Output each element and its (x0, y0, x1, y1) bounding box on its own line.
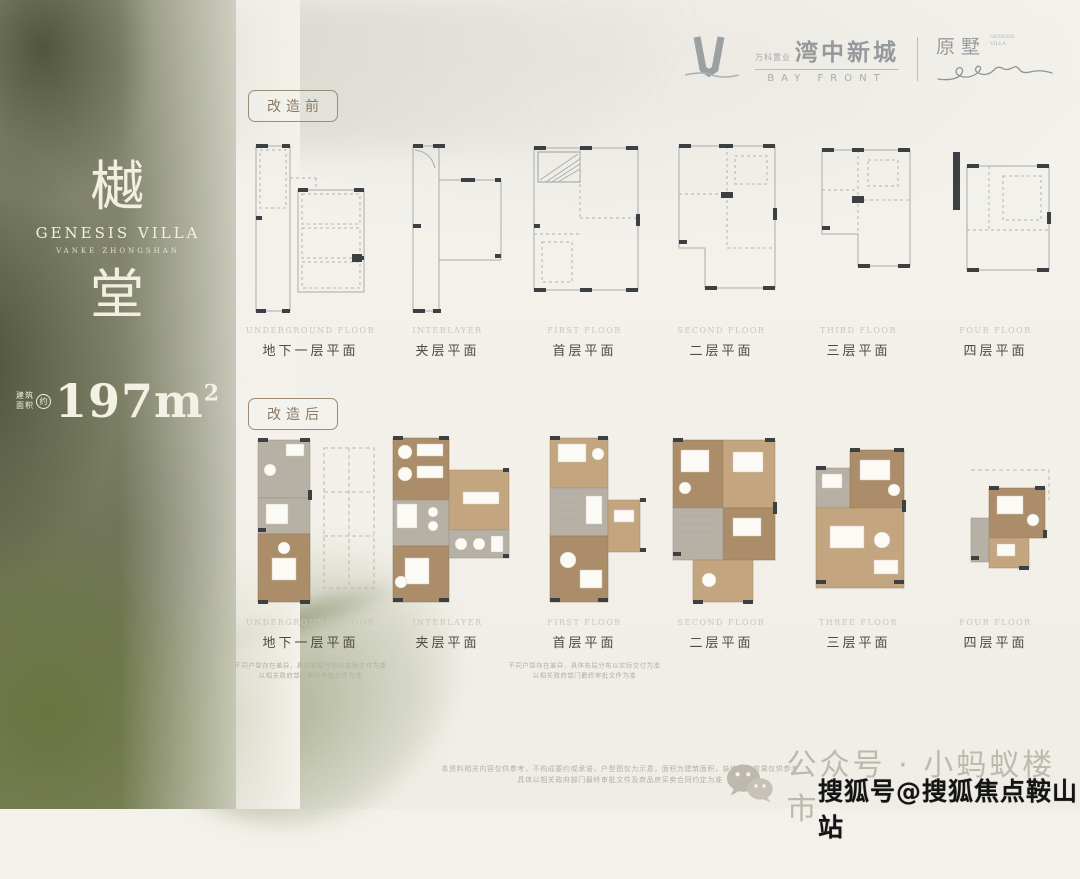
area-sup: 2 (204, 381, 220, 407)
area-approx-circle: 约 (36, 394, 51, 409)
plan-label-cn: 二层平面 (689, 632, 753, 651)
sub-brand-cn: 原墅 (936, 32, 986, 59)
plan-label-en: INTERLAYER (412, 618, 482, 627)
plan-after-interlayer: INTERLAYER 夹层平面 (379, 428, 516, 682)
project-name-cn: 湾中新城 (795, 33, 899, 67)
plan-label-cn: 夹层平面 (415, 340, 479, 359)
plan-after-first: FIRST FLOOR 首层平面 不同户型存在差异，具体布局分布以实际交付为准 … (516, 428, 653, 682)
plan-label-en: FIRST FLOOR (547, 326, 622, 335)
plan-before-interlayer: INTERLAYER 夹层平面 (379, 136, 516, 359)
sub-brand-block: 原墅 GENESIS VILLA (936, 32, 1056, 85)
plan-after-three: THREE FLOOR 三层平面 (790, 428, 927, 682)
plan-disclaimer-note: 不同户型存在差异，具体布局分布以实际交付为准 以相关政府部门最终审批文件为准 (235, 661, 387, 682)
floorplan-drawing (657, 428, 787, 616)
plan-label-en: FOUR FLOOR (959, 618, 1031, 627)
plan-label-en: FOUR FLOOR (959, 326, 1031, 335)
area-prefix: 建筑 面积 (16, 391, 34, 410)
badge-after-renovation: 改造后 (248, 398, 338, 430)
villa-name-char-bottom: 堂 (0, 268, 236, 322)
villa-name-char-top: 樾 (0, 160, 236, 214)
floorplan-drawing (794, 428, 924, 616)
plan-after-four: FOUR FLOOR 四层平面 (927, 428, 1064, 682)
plan-label-cn: 地下一层平面 (262, 632, 358, 651)
floorplan-drawing (794, 136, 924, 324)
area-prefix-line2: 面积 (16, 401, 34, 411)
wechat-icon (724, 761, 775, 807)
villa-name-sub: VANKE ZHONGSHAN (0, 247, 236, 255)
plan-after-underground: UNDERGROUND FLOOR 地下一层平面 不同户型存在差异，具体布局分布… (242, 428, 379, 682)
plans-row-before: UNDERGROUND FLOOR 地下一层平面 INTERLAYER 夹层平面 (242, 136, 1068, 359)
floorplan-drawing (520, 428, 650, 616)
sohu-watermark: 搜狐号@搜狐焦点鞍山站 (818, 772, 1080, 844)
plan-before-first: FIRST FLOOR 首层平面 (516, 136, 653, 359)
plan-after-second: SECOND FLOOR 二层平面 (653, 428, 790, 682)
signature-script-icon (936, 59, 1056, 85)
area-block: 建筑 面积 约 197m2 (16, 378, 220, 424)
plan-label-en: THIRD FLOOR (820, 326, 897, 335)
plan-label-cn: 首层平面 (552, 340, 616, 359)
plan-label-en: FIRST FLOOR (547, 618, 622, 627)
plan-before-underground: UNDERGROUND FLOOR 地下一层平面 (242, 136, 379, 359)
plan-label-cn: 四层平面 (963, 632, 1027, 651)
plan-label-en: SECOND FLOOR (678, 326, 766, 335)
developer-small-label: 万科置业 (755, 52, 791, 63)
plan-label-cn: 地下一层平面 (262, 340, 358, 359)
plan-label-en: THREE FLOOR (819, 618, 898, 627)
plan-label-cn: 二层平面 (689, 340, 753, 359)
area-prefix-line1: 建筑 (16, 391, 34, 401)
floorplan-drawing (246, 136, 376, 324)
bayfront-wordmark: 万科置业 湾中新城 BAY FRONT (755, 33, 899, 84)
plan-label-en: INTERLAYER (412, 326, 482, 335)
floorplan-drawing (931, 136, 1061, 324)
floorplan-drawing (657, 136, 787, 324)
plan-before-third: THIRD FLOOR 三层平面 (790, 136, 927, 359)
project-name-en: BAY FRONT (755, 69, 899, 84)
floorplan-drawing (246, 428, 376, 616)
bayfront-u-logo-icon (683, 33, 741, 85)
plan-label-en: SECOND FLOOR (678, 618, 766, 627)
plan-label-cn: 三层平面 (826, 340, 890, 359)
header-brand-bar: 万科置业 湾中新城 BAY FRONT 原墅 GENESIS VILLA (683, 32, 1056, 85)
floorplan-drawing (520, 136, 650, 324)
plan-label-cn: 四层平面 (963, 340, 1027, 359)
plans-row-after: UNDERGROUND FLOOR 地下一层平面 不同户型存在差异，具体布局分布… (242, 428, 1068, 682)
area-value: 197m2 (55, 378, 220, 424)
floorplan-drawing (383, 136, 513, 324)
plan-before-four: FOUR FLOOR 四层平面 (927, 136, 1064, 359)
plan-label-en: UNDERGROUND FLOOR (246, 326, 375, 335)
floorplan-drawing (383, 428, 513, 616)
badge-before-renovation: 改造前 (248, 90, 338, 122)
plan-label-en: UNDERGROUND FLOOR (246, 618, 375, 627)
sub-brand-small-label: GENESIS VILLA (990, 34, 1024, 47)
plan-label-cn: 三层平面 (826, 632, 890, 651)
plan-before-second: SECOND FLOOR 二层平面 (653, 136, 790, 359)
villa-name-en: GENESIS VILLA (0, 224, 236, 242)
brand-divider (917, 37, 918, 81)
floorplan-drawing (931, 428, 1061, 616)
plan-disclaimer-note: 不同户型存在差异，具体布局分布以实际交付为准 以相关政府部门最终审批文件为准 (509, 661, 661, 682)
plan-label-cn: 夹层平面 (415, 632, 479, 651)
plan-label-cn: 首层平面 (552, 632, 616, 651)
